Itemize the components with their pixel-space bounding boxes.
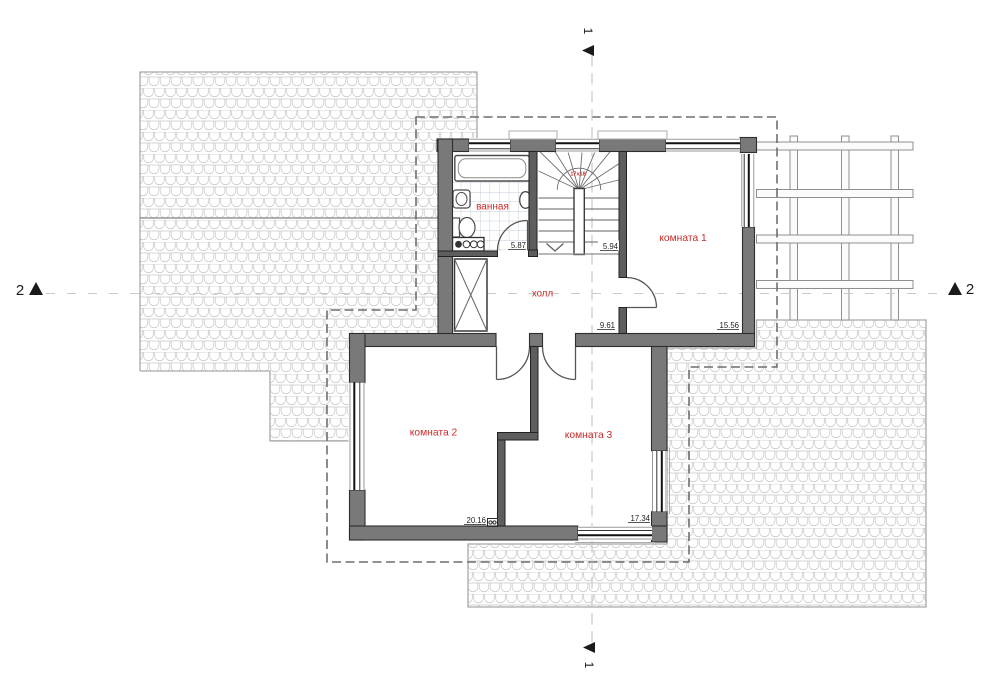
svg-text:20.16: 20.16 bbox=[466, 516, 486, 525]
svg-text:17x18: 17x18 bbox=[570, 172, 585, 178]
svg-text:5.87: 5.87 bbox=[511, 241, 526, 250]
svg-text:1: 1 bbox=[581, 28, 595, 35]
svg-text:9.61: 9.61 bbox=[600, 321, 615, 330]
svg-text:1: 1 bbox=[582, 662, 596, 669]
svg-text:холл: холл bbox=[532, 289, 553, 300]
svg-text:5.94: 5.94 bbox=[603, 242, 619, 251]
svg-text:17.34: 17.34 bbox=[630, 514, 650, 523]
svg-text:комната 2: комната 2 bbox=[410, 428, 458, 439]
svg-text:комната 3: комната 3 bbox=[565, 430, 613, 441]
svg-text:2: 2 bbox=[966, 281, 974, 298]
svg-text:ванная: ванная bbox=[476, 202, 509, 213]
svg-text:2: 2 bbox=[16, 282, 24, 299]
svg-text:комната 1: комната 1 bbox=[659, 233, 707, 244]
svg-text:15.56: 15.56 bbox=[719, 321, 739, 330]
